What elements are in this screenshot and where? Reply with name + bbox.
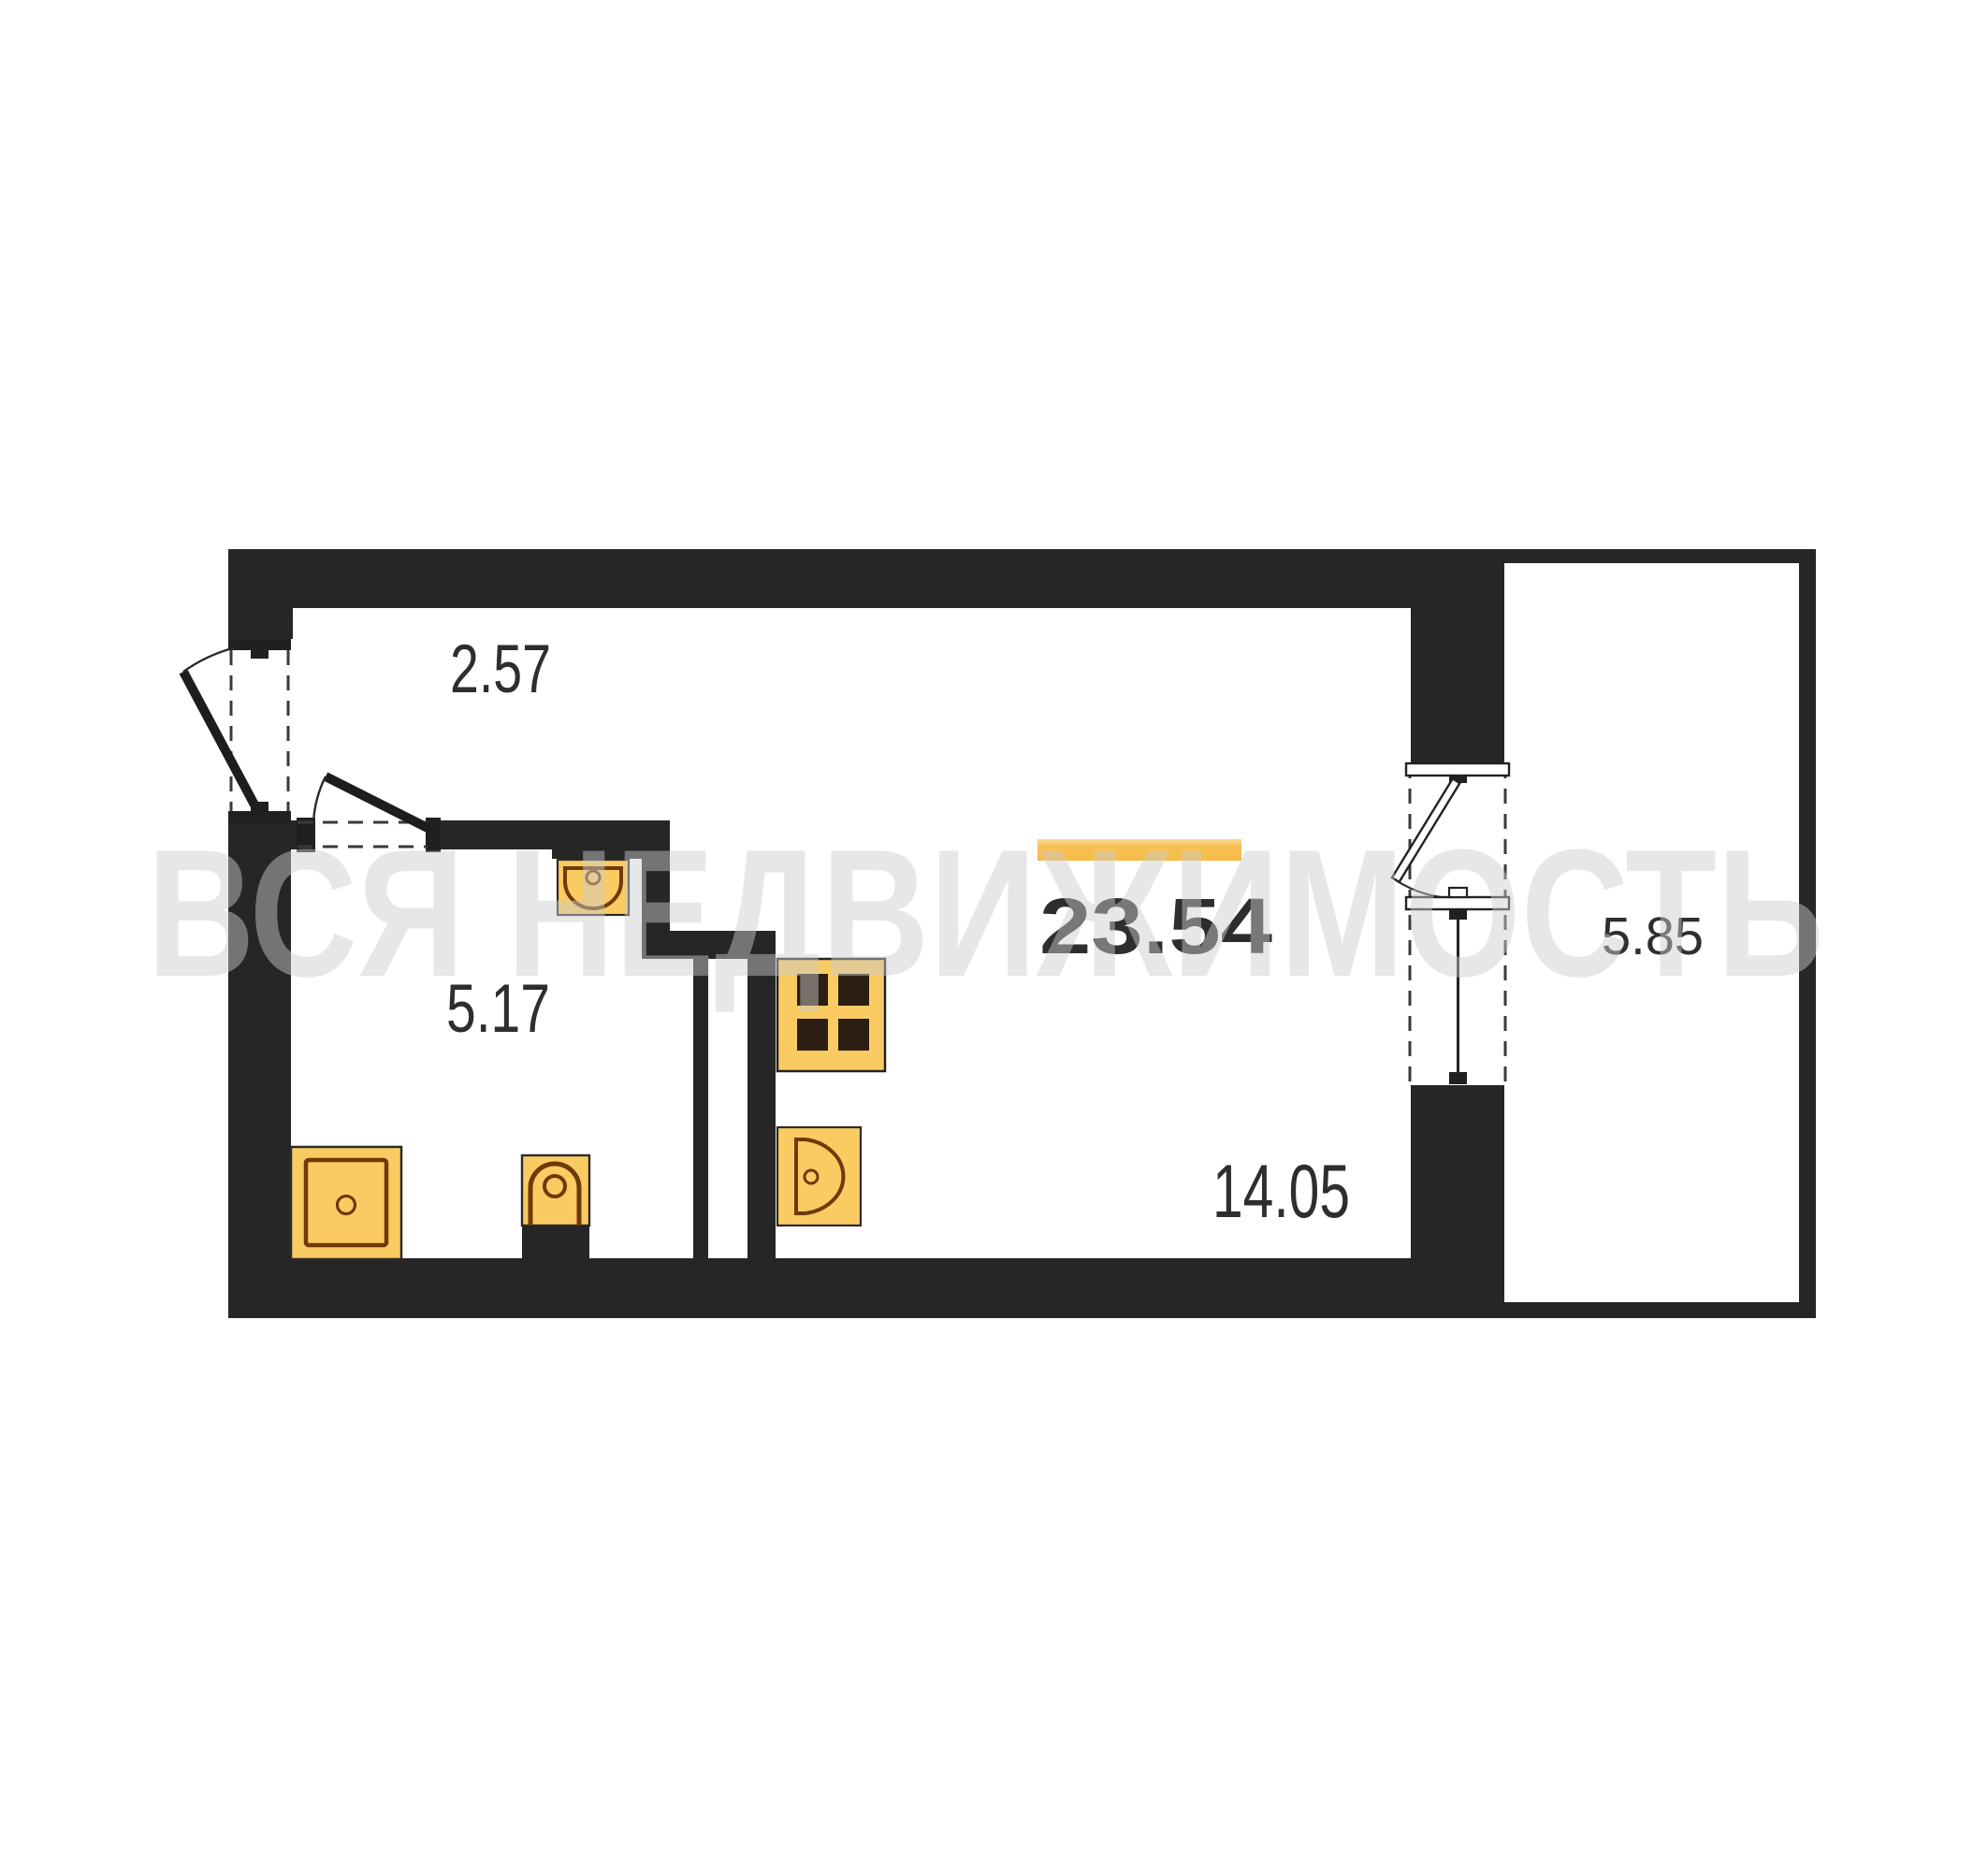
svg-text:2.57: 2.57 [450, 631, 551, 707]
svg-text:ВСЯ НЕДВИЖИМОСТЬ: ВСЯ НЕДВИЖИМОСТЬ [147, 812, 1824, 1015]
svg-text:14.05: 14.05 [1212, 1150, 1350, 1234]
